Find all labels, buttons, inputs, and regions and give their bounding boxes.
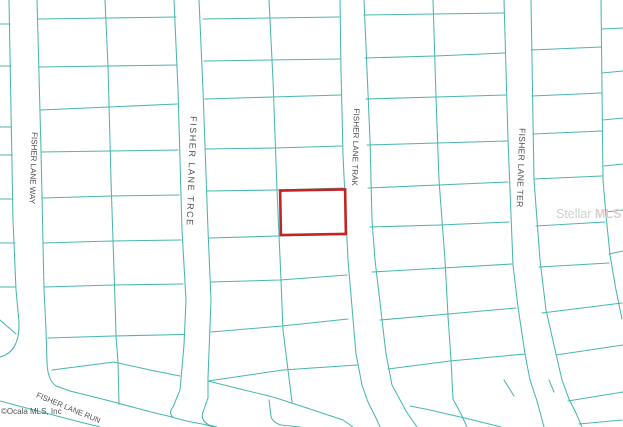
svg-text:Stellar MLS: Stellar MLS [556, 207, 621, 221]
svg-text:©Ocala MLS, Inc: ©Ocala MLS, Inc [1, 407, 62, 416]
